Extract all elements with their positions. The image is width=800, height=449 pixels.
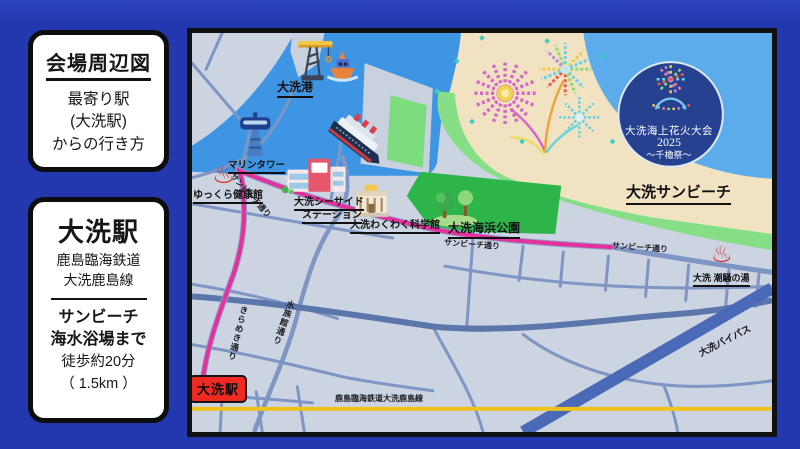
logo-subtitle: 〜千櫓祭〜 [611,148,727,161]
area-map: 大洗港 マリンタワー ♨ ゆっくら健康館 大洗シーサイド ステーション 大洗わく… [187,28,777,437]
kaihin-park-label: 大洗海浜公園 [448,219,520,239]
walk-distance: （ 1.5km ） [33,374,164,396]
sun-beach-label: 大洗サンビーチ [626,181,731,205]
railway-label: 鹿島臨海鉄道大洗鹿島線 [335,393,423,404]
destination-line: サンビーチ [33,307,164,329]
venue-box-title: 会場周辺図 [46,47,151,81]
onsen-icon: ♨ [711,243,733,267]
destination-line: 海水浴場まで [33,329,164,351]
walk-time: 徒歩約20分 [33,352,164,374]
venue-box-line: (大洗駅) [33,111,164,133]
station-name: 大洗駅 [33,212,164,249]
venue-box-line: からの行き方 [33,134,164,156]
shiosai-onsen-label: 大洗 潮騒の湯 [693,271,750,287]
venue-box-line: 最寄り駅 [33,89,164,111]
station-info-box: 大洗駅 鹿島臨海鉄道 大洗鹿島線 サンビーチ 海水浴場まで 徒歩約20分 （ 1… [28,197,169,423]
venue-map-box: 会場周辺図 最寄り駅 (大洗駅) からの行き方 [28,30,169,172]
port-label: 大洗港 [277,78,313,98]
science-museum-label: 大洗わくわく科学館 [350,216,440,234]
pier-green-strip [387,95,427,167]
railway-company: 鹿島臨海鉄道 [33,251,164,271]
railway-line: 大洗鹿島線 [33,271,164,291]
divider [51,298,147,300]
oarai-station-badge: 大洗駅 [189,375,247,403]
poster-background: 会場周辺図 最寄り駅 (大洗駅) からの行き方 大洗駅 鹿島臨海鉄道 大洗鹿島線… [0,0,800,449]
